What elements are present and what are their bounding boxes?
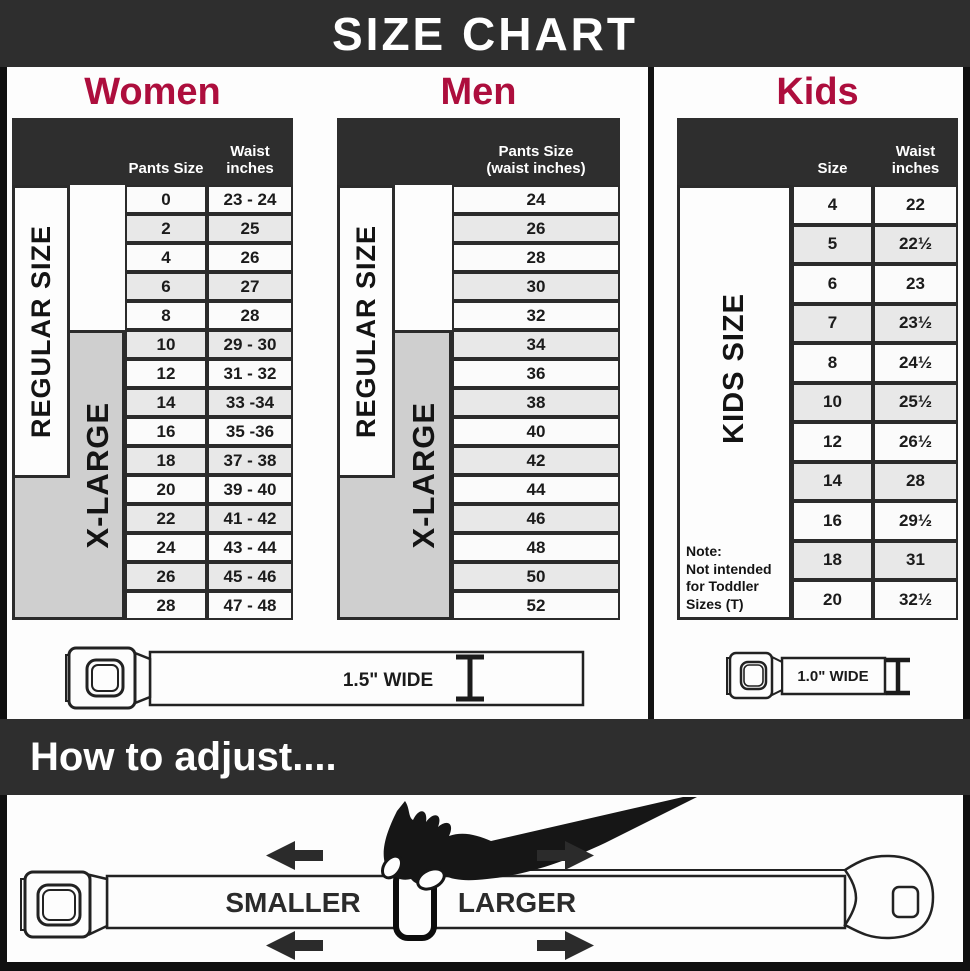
waist-cell: 39 - 40 [207,475,293,504]
men-regular-size-label: REGULAR SIZE [337,185,395,478]
adjust-belt-svg: SMALLER LARGER [7,795,963,962]
table-row: 28 [452,243,620,272]
table-row: 52 [452,591,620,620]
width-measure-icon [886,660,910,693]
larger-label: LARGER [458,887,576,918]
table-row: 26 45 - 46 [125,562,293,591]
header-spacer [337,118,452,185]
pants-size-cell: 24 [452,185,620,214]
pants-size-cell: 30 [452,272,620,301]
header-spacer [12,118,125,185]
section-divider [648,67,654,719]
waist-cell: 22 [873,185,958,225]
table-row: 40 [452,417,620,446]
women-col-waist: Waist inches [207,118,293,185]
size-cell: 6 [792,264,873,304]
pants-size-cell: 38 [452,388,620,417]
pants-size-cell: 4 [125,243,207,272]
table-row: 48 [452,533,620,562]
table-row: 20 39 - 40 [125,475,293,504]
belt-buckle-icon [66,648,150,708]
table-row: 24 43 - 44 [125,533,293,562]
belt-width-label: 1.5" WIDE [343,670,433,691]
table-row: 32 [452,301,620,330]
kids-note: Note: Not intended for Toddler Sizes (T) [686,543,787,613]
pants-size-cell: 42 [452,446,620,475]
men-label-zone: REGULAR SIZE X-LARGE [337,185,452,620]
pants-size-cell: 0 [125,185,207,214]
waist-cell: 37 - 38 [207,446,293,475]
size-cell: 14 [792,462,873,502]
belt-graphic-kids: 1.0" WIDE [670,650,960,702]
table-row: 4 22 [792,185,958,225]
belt-tip-icon [845,856,933,938]
women-label-zone: REGULAR SIZE X-LARGE [12,185,125,620]
table-row: 5 22½ [792,225,958,265]
size-cell: 7 [792,304,873,344]
pants-size-cell: 52 [452,591,620,620]
kids-heading: Kids [677,69,958,115]
table-row: 14 33 -34 [125,388,293,417]
waist-cell: 25 [207,214,293,243]
table-row: 6 23 [792,264,958,304]
pants-size-cell: 2 [125,214,207,243]
table-row: 4 26 [125,243,293,272]
pants-size-cell: 16 [125,417,207,446]
women-table-header: Pants Size Waist inches [12,118,293,185]
table-row: 30 [452,272,620,301]
size-cell: 20 [792,580,873,620]
table-row: 18 31 [792,541,958,581]
pants-size-cell: 32 [452,301,620,330]
pants-size-cell: 44 [452,475,620,504]
table-row: 0 23 - 24 [125,185,293,214]
men-table-header: Pants Size (waist inches) [337,118,620,185]
waist-cell: 29 - 30 [207,330,293,359]
table-row: 42 [452,446,620,475]
table-row: 6 27 [125,272,293,301]
size-cell: 5 [792,225,873,265]
table-row: 14 28 [792,462,958,502]
table-row: 22 41 - 42 [125,504,293,533]
header-spacer [677,118,792,185]
women-col-pants-size: Pants Size [125,118,207,185]
belt-graphic-women-men: 1.5" WIDE [55,645,595,711]
table-row: 38 [452,388,620,417]
table-row: 46 [452,504,620,533]
waist-cell: 47 - 48 [207,591,293,620]
men-heading: Men [337,69,620,115]
kids-rows: 4 22 5 22½ 6 23 7 23½ [792,185,958,620]
pants-size-cell: 26 [452,214,620,243]
kids-size-label: KIDS SIZE [680,188,789,548]
women-regular-size-label: REGULAR SIZE [12,185,70,478]
table-row: 28 47 - 48 [125,591,293,620]
size-cell: 4 [792,185,873,225]
main-area: Women Men Kids Pants Size Waist inches R… [7,67,963,719]
table-row: 34 [452,330,620,359]
arrow-right-icon [537,931,594,960]
table-row: 7 23½ [792,304,958,344]
arrow-left-icon [266,841,323,870]
waist-cell: 31 [873,541,958,581]
table-row: 16 35 -36 [125,417,293,446]
pants-size-cell: 28 [125,591,207,620]
waist-cell: 41 - 42 [207,504,293,533]
men-rows: 24 26 28 30 32 [452,185,620,620]
men-x-large-label: X-LARGE [395,330,452,620]
size-cell: 18 [792,541,873,581]
waist-cell: 27 [207,272,293,301]
kids-col-waist: Waist inches [873,118,958,185]
waist-cell: 33 -34 [207,388,293,417]
how-to-adjust-heading: How to adjust.... [0,719,970,795]
table-row: 12 31 - 32 [125,359,293,388]
table-row: 12 26½ [792,422,958,462]
table-row: 10 25½ [792,383,958,423]
size-cell: 8 [792,343,873,383]
waist-cell: 23 - 24 [207,185,293,214]
arrow-left-icon [266,931,323,960]
pants-size-cell: 14 [125,388,207,417]
table-row: 8 24½ [792,343,958,383]
adjust-illustration: SMALLER LARGER [7,795,963,962]
pants-size-cell: 22 [125,504,207,533]
table-row: 24 [452,185,620,214]
waist-cell: 43 - 44 [207,533,293,562]
waist-cell: 25½ [873,383,958,423]
waist-cell: 32½ [873,580,958,620]
belt-buckle-icon [21,872,107,937]
pants-size-cell: 26 [125,562,207,591]
women-rows: 0 23 - 24 2 25 4 26 6 2 [125,185,293,620]
waist-cell: 24½ [873,343,958,383]
pants-size-cell: 12 [125,359,207,388]
table-row: 50 [452,562,620,591]
pants-size-cell: 34 [452,330,620,359]
pants-size-cell: 20 [125,475,207,504]
table-row: 8 28 [125,301,293,330]
waist-cell: 22½ [873,225,958,265]
men-col-pants-size: Pants Size (waist inches) [452,118,620,185]
women-x-large-label: X-LARGE [70,330,125,620]
kids-size-box: KIDS SIZE Note: Not intended for Toddler… [677,185,792,620]
belt-buckle-icon [727,653,782,698]
waist-cell: 35 -36 [207,417,293,446]
page-title: SIZE CHART [0,0,970,67]
pants-size-cell: 36 [452,359,620,388]
waist-cell: 23 [873,264,958,304]
kids-label-zone: KIDS SIZE Note: Not intended for Toddler… [677,185,792,620]
size-cell: 12 [792,422,873,462]
pants-size-cell: 24 [125,533,207,562]
waist-cell: 26 [207,243,293,272]
women-table: Pants Size Waist inches REGULAR SIZE X-L… [12,118,293,620]
smaller-label: SMALLER [225,887,360,918]
table-row: 26 [452,214,620,243]
table-row: 10 29 - 30 [125,330,293,359]
size-chart-infographic: SIZE CHART Women Men Kids Pants Size Wai… [0,0,970,971]
table-row: 18 37 - 38 [125,446,293,475]
table-row: 2 25 [125,214,293,243]
pants-size-cell: 40 [452,417,620,446]
waist-cell: 28 [207,301,293,330]
waist-cell: 31 - 32 [207,359,293,388]
women-heading: Women [12,69,293,115]
pants-size-cell: 50 [452,562,620,591]
kids-table-header: Size Waist inches [677,118,958,185]
pants-size-cell: 18 [125,446,207,475]
pants-size-cell: 6 [125,272,207,301]
kids-note-title: Note: [686,543,722,559]
pants-size-cell: 8 [125,301,207,330]
size-cell: 10 [792,383,873,423]
waist-cell: 29½ [873,501,958,541]
kids-col-size: Size [792,118,873,185]
table-row: 20 32½ [792,580,958,620]
pants-size-cell: 28 [452,243,620,272]
table-row: 44 [452,475,620,504]
men-table: Pants Size (waist inches) REGULAR SIZE X… [337,118,620,620]
waist-cell: 26½ [873,422,958,462]
table-row: 16 29½ [792,501,958,541]
kids-table: Size Waist inches KIDS SIZE Note: Not in… [677,118,958,620]
waist-cell: 28 [873,462,958,502]
belt-width-label: 1.0" WIDE [797,668,868,685]
pants-size-cell: 10 [125,330,207,359]
pants-size-cell: 46 [452,504,620,533]
table-row: 36 [452,359,620,388]
kids-note-body: Not intended for Toddler Sizes (T) [686,561,772,612]
waist-cell: 45 - 46 [207,562,293,591]
waist-cell: 23½ [873,304,958,344]
pants-size-cell: 48 [452,533,620,562]
size-cell: 16 [792,501,873,541]
